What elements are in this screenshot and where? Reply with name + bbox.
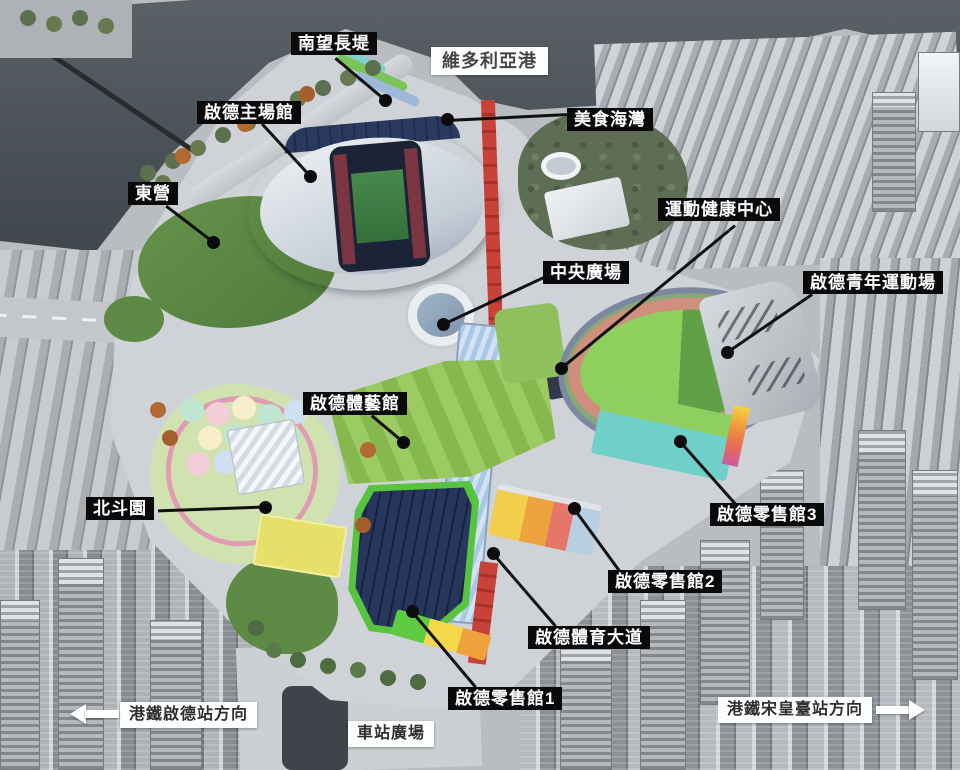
youth-ground-dot [721,346,734,359]
east-camp-dot [207,236,220,249]
arrow-head [70,704,86,724]
retail3-dot [674,435,687,448]
mtr-sung-wong-toi-label: 港鐵宋皇臺站方向 [718,697,872,723]
central-plaza-label: 中央廣場 [543,261,629,284]
stadium-label: 啟德主場館 [197,101,301,124]
city-tower [912,470,958,680]
arrow-shaft [876,706,910,714]
waterfront-building [918,52,960,132]
food-bay-dot [441,113,454,126]
tree-cluster [140,165,156,181]
health-centre-dot [555,362,568,375]
city-tower [760,470,804,620]
retail3-label: 啟德零售館3 [710,503,824,526]
stadium-dot [304,170,317,183]
retail2-label: 啟德零售館2 [608,570,722,593]
retail1-label: 啟德零售館1 [448,687,562,710]
arrow-head [909,700,925,720]
east-camp-label: 東營 [128,182,178,205]
city-tower [150,620,202,770]
retail2-dot [568,502,581,515]
north-star-park-dot [259,501,272,514]
promenade-label: 南望長堤 [291,32,377,55]
kai-tak-sports-park-map: 南望長堤 維多利亞港 啟德主場館 美食海灣 東營 運動健康中心 中央廣場 啟德青… [0,0,960,770]
city-tower [858,430,906,610]
city-tower [0,600,40,770]
grandstand-seating [745,355,806,396]
stadium-stand [333,154,356,265]
autumn-tree-cluster [175,148,191,164]
health-centre-label: 運動健康中心 [658,198,780,221]
mtr-kai-tak-label: 港鐵啟德站方向 [120,702,257,728]
food-bay-label: 美食海灣 [567,108,653,131]
tree-cluster [290,652,306,668]
promenade-dot [379,94,392,107]
arena-label: 啟德體藝館 [303,392,407,415]
playground-domes [180,398,204,422]
tree-cluster [20,10,36,26]
stadium-pitch [351,169,409,243]
city-tower [700,540,750,705]
city-tower [58,558,104,770]
autumn-tree-cluster [150,402,166,418]
arrow-right-icon [876,700,926,720]
arrow-shaft [85,710,119,718]
station-square-label: 車站廣場 [348,721,434,747]
harbour-label: 維多利亞港 [431,47,548,75]
north-star-park-label: 北斗園 [86,497,154,520]
stadium-opening [329,140,432,274]
sports-avenue-dot [487,547,500,560]
shore-land [0,0,132,58]
round-pavilion [541,152,581,180]
playground-canopy [227,419,305,496]
youth-ground-label: 啟德青年運動場 [803,271,943,294]
retail1-dot [406,605,419,618]
arrow-left-icon [70,704,120,724]
arena-dot [397,436,410,449]
city-tower [872,92,916,212]
sports-avenue-label: 啟德體育大道 [528,626,650,649]
city-tower [560,645,612,770]
small-lawn [104,296,164,342]
central-plaza-dot [437,318,450,331]
